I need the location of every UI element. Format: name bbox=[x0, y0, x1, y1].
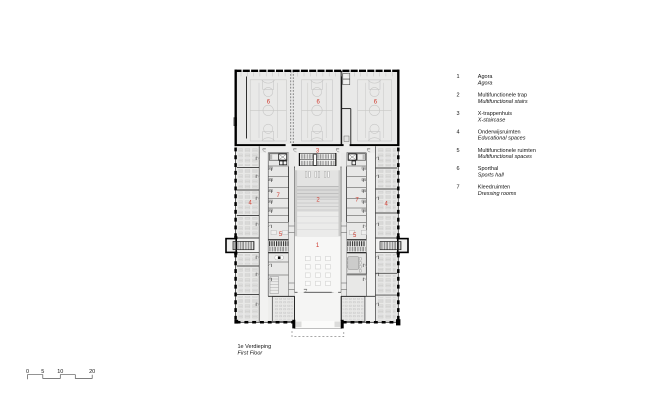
svg-text:6: 6 bbox=[457, 166, 460, 172]
svg-text:10: 10 bbox=[57, 369, 63, 375]
svg-text:Multifunctional stairs: Multifunctional stairs bbox=[478, 99, 528, 105]
svg-text:Dressing rooms: Dressing rooms bbox=[478, 191, 517, 197]
svg-text:4: 4 bbox=[457, 129, 460, 135]
svg-text:5: 5 bbox=[41, 369, 44, 375]
svg-text:2: 2 bbox=[457, 93, 460, 99]
svg-text:Sports hall: Sports hall bbox=[478, 173, 505, 179]
svg-text:Agora: Agora bbox=[477, 81, 493, 87]
svg-text:X-trappenhuis: X-trappenhuis bbox=[478, 111, 512, 117]
svg-text:Sporthal: Sporthal bbox=[478, 166, 499, 172]
svg-text:Onderwijsruimten: Onderwijsruimten bbox=[478, 129, 521, 135]
svg-text:5: 5 bbox=[457, 148, 460, 154]
svg-text:Agora: Agora bbox=[478, 74, 494, 80]
svg-text:7: 7 bbox=[457, 185, 460, 191]
svg-text:Kleedruimten: Kleedruimten bbox=[478, 185, 510, 191]
svg-text:1e Verdieping: 1e Verdieping bbox=[238, 344, 272, 350]
svg-text:20: 20 bbox=[89, 369, 95, 375]
svg-text:Educational spaces: Educational spaces bbox=[478, 136, 526, 142]
svg-text:1: 1 bbox=[457, 74, 460, 80]
svg-text:X-staircase: X-staircase bbox=[477, 117, 506, 123]
svg-text:3: 3 bbox=[457, 111, 460, 117]
svg-text:First Floor: First Floor bbox=[238, 350, 264, 356]
svg-text:Multifunctionele trap: Multifunctionele trap bbox=[478, 93, 527, 99]
svg-text:0: 0 bbox=[26, 369, 29, 375]
svg-text:Multifunctionele ruimten: Multifunctionele ruimten bbox=[478, 148, 536, 154]
svg-text:Multifunctional spaces: Multifunctional spaces bbox=[478, 154, 532, 160]
